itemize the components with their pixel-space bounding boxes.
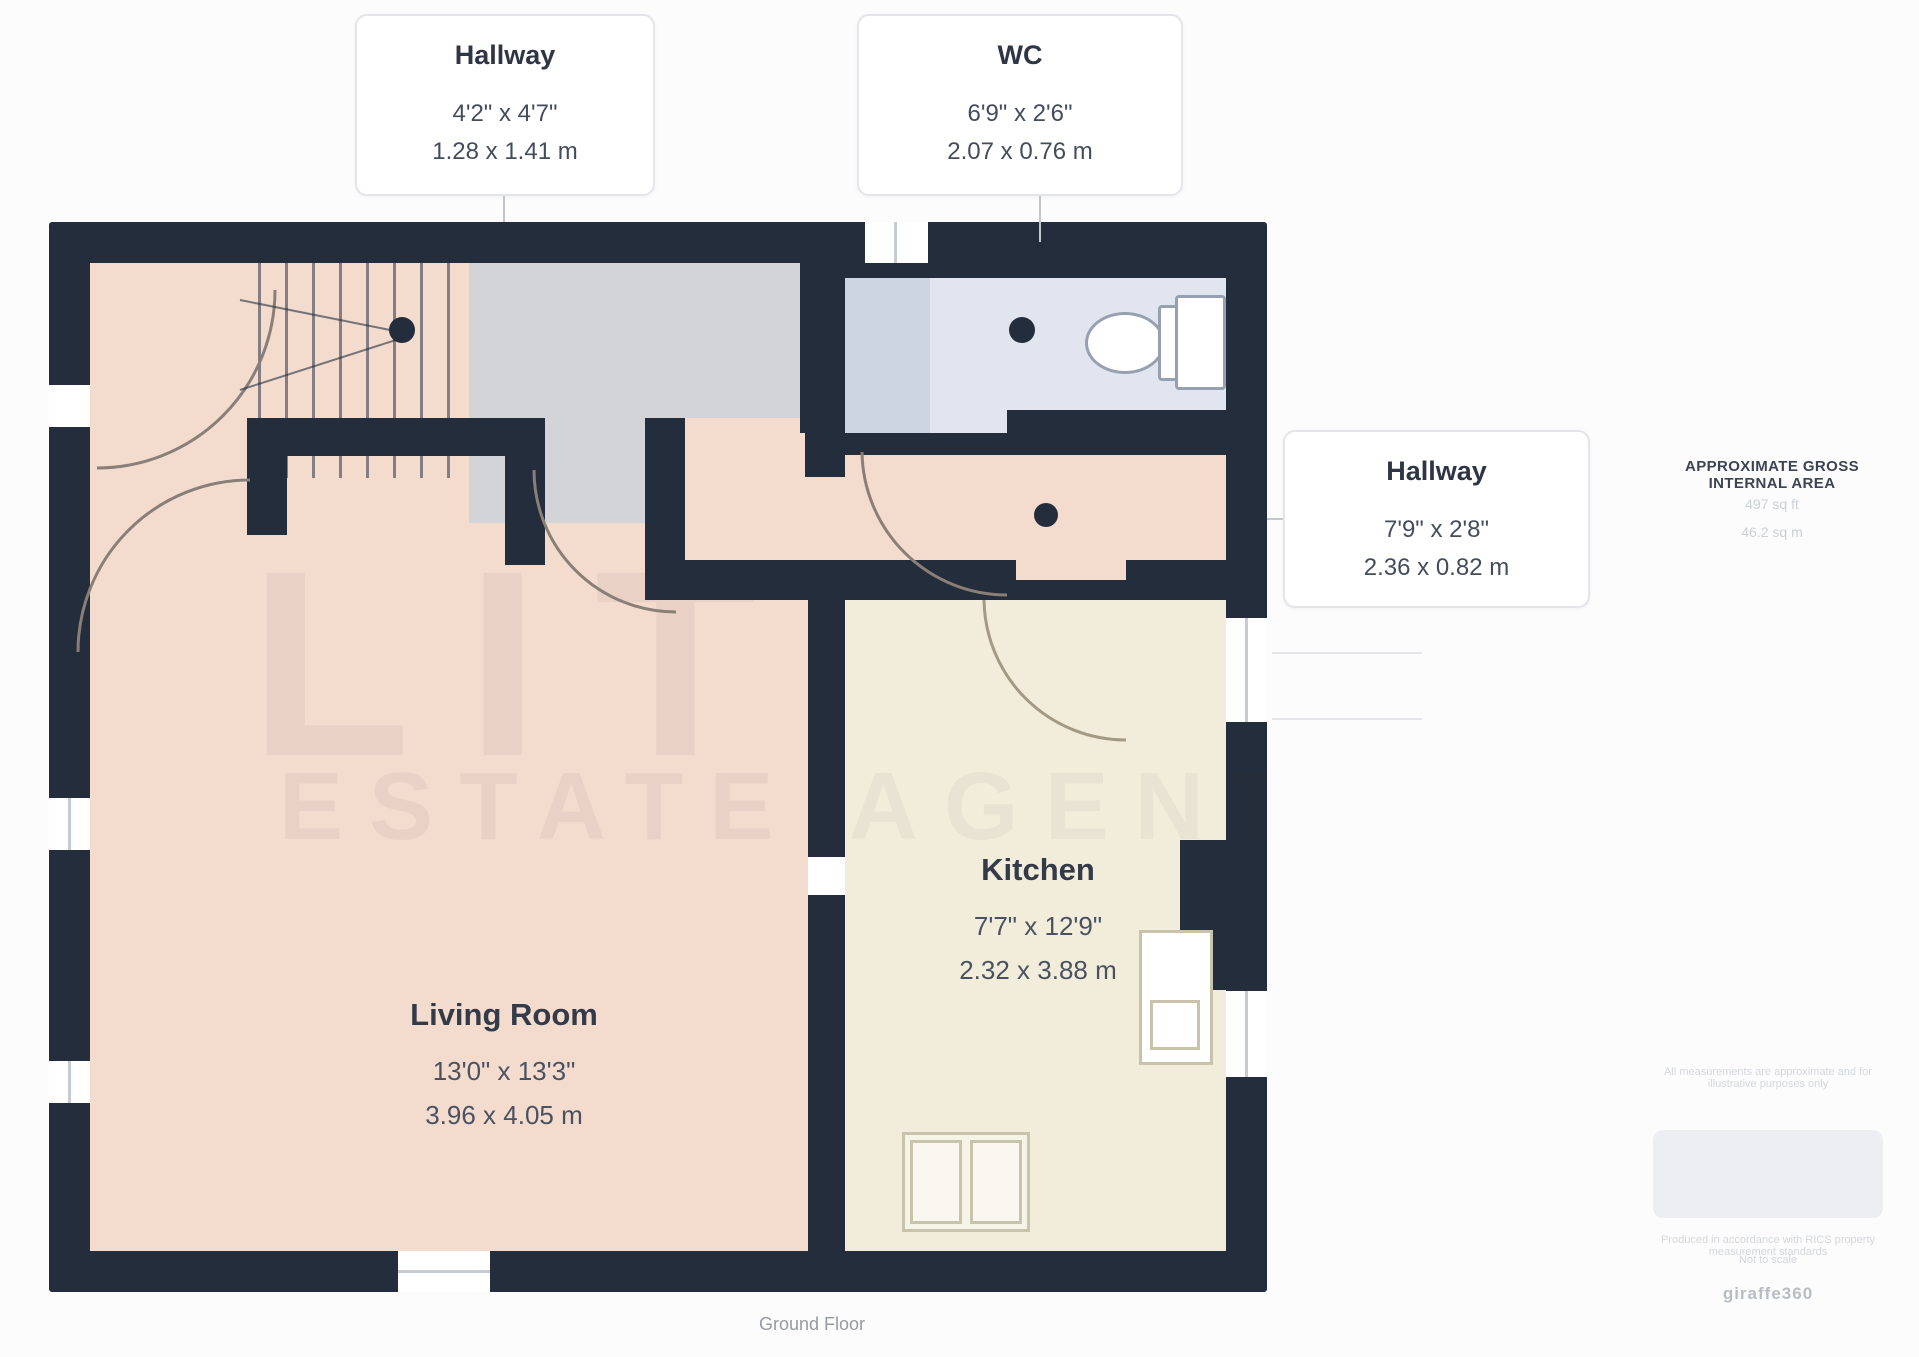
living-room-label: Living Room 13'0" x 13'3" 3.96 x 4.05 m — [304, 997, 704, 1137]
room-dims-imperial: 7'7" x 12'9" — [858, 904, 1218, 948]
callout-title: Hallway — [455, 40, 556, 71]
callout-dims-imperial: 6'9" x 2'6" — [968, 95, 1073, 133]
wall — [645, 418, 685, 560]
callout-dims-imperial: 7'9" x 2'8" — [1384, 511, 1489, 549]
callout-title: WC — [998, 40, 1043, 71]
sill-line — [1272, 652, 1422, 654]
area-imperial: 497 sq ft — [1672, 496, 1872, 512]
callout-connector — [1267, 518, 1283, 520]
wall — [805, 400, 845, 477]
door-opening — [808, 857, 845, 895]
appliance-left — [910, 1140, 962, 1224]
callout-title: Hallway — [1386, 456, 1487, 487]
hallway-door-post — [1034, 503, 1058, 527]
callout-dims-imperial: 4'2" x 4'7" — [453, 95, 558, 133]
stair-newel-post — [389, 317, 415, 343]
area-summary-title: APPROXIMATE GROSS INTERNAL AREA — [1652, 458, 1892, 492]
room-title: Kitchen — [858, 852, 1218, 888]
area-metric: 46.2 sq m — [1672, 524, 1872, 540]
footer-line-c: Not to scale — [1650, 1254, 1886, 1266]
agency-logo — [1653, 1130, 1883, 1218]
window-left-1 — [49, 385, 90, 427]
callout-dims-metric: 2.36 x 0.82 m — [1364, 549, 1509, 587]
wall — [247, 418, 545, 456]
footer-note: All measurements are approximate and for… — [1650, 1066, 1886, 1090]
floor-caption: Ground Floor — [712, 1314, 912, 1335]
callout-connector — [1039, 196, 1041, 242]
room-dims-imperial: 13'0" x 13'3" — [304, 1049, 704, 1093]
wc-door-post — [1009, 317, 1035, 343]
sill-line — [1272, 718, 1422, 720]
callout-hallway-top: Hallway 4'2" x 4'7" 1.28 x 1.41 m — [355, 14, 655, 196]
appliance-right — [970, 1140, 1022, 1224]
callout-hallway-right: Hallway 7'9" x 2'8" 2.36 x 0.82 m — [1283, 430, 1590, 608]
wall — [808, 600, 845, 1251]
toilet-icon — [1085, 312, 1165, 374]
floorplan-canvas: LIT ESTATE AGENTS — [49, 222, 1267, 1292]
callout-dims-metric: 2.07 x 0.76 m — [947, 133, 1092, 171]
floorplan-page: LIT ESTATE AGENTS — [0, 0, 1919, 1357]
wall — [505, 418, 545, 565]
floorplan-provider-logo: giraffe360 — [1653, 1284, 1883, 1304]
room-dims-metric: 3.96 x 4.05 m — [304, 1093, 704, 1137]
callout-wc: WC 6'9" x 2'6" 2.07 x 0.76 m — [857, 14, 1183, 196]
sink-icon — [1175, 295, 1226, 390]
room-dims-metric: 2.32 x 3.88 m — [858, 948, 1218, 992]
callout-dims-metric: 1.28 x 1.41 m — [432, 133, 577, 171]
kitchen-label: Kitchen 7'7" x 12'9" 2.32 x 3.88 m — [858, 852, 1218, 992]
room-title: Living Room — [304, 997, 704, 1033]
wall — [645, 560, 1016, 600]
wall — [1007, 410, 1226, 452]
callout-connector — [503, 196, 505, 222]
wall — [1126, 560, 1226, 600]
wc-floor-shaded — [845, 278, 930, 433]
counter-detail — [1150, 1000, 1200, 1050]
